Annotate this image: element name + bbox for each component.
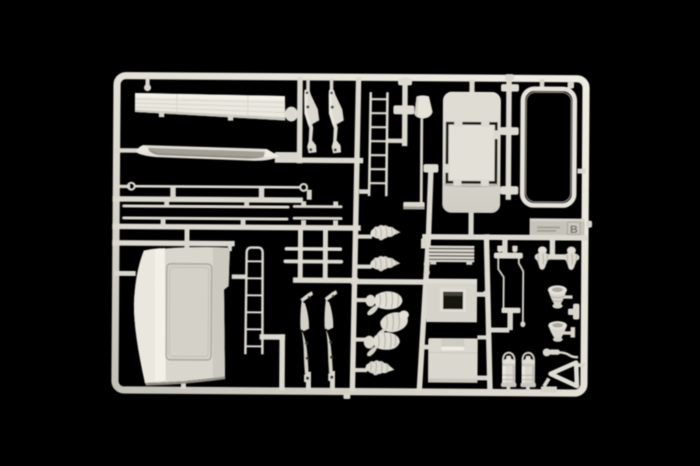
svg-text:B: B: [570, 224, 578, 236]
